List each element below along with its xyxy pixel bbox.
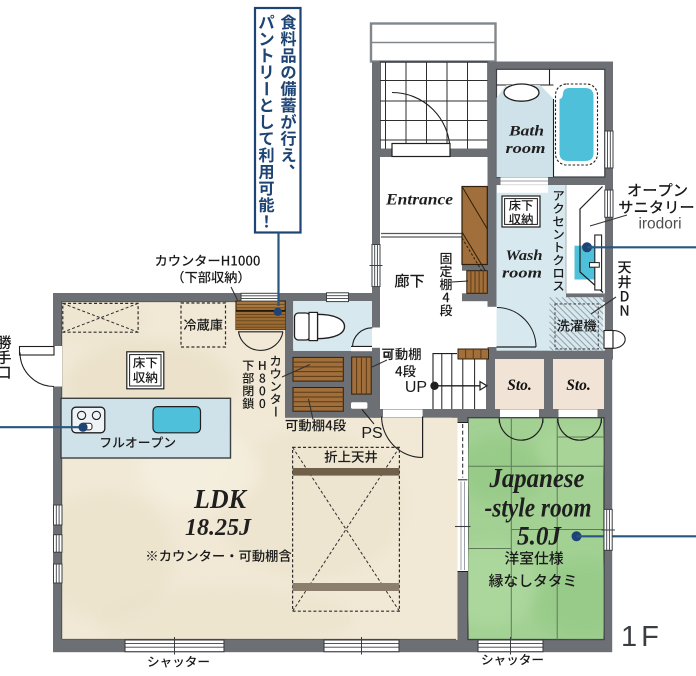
svg-text:room: room (502, 266, 542, 282)
svg-text:Sto.: Sto. (566, 377, 591, 394)
svg-text:Bath: Bath (508, 124, 544, 140)
svg-text:irodori: irodori (638, 216, 681, 233)
svg-text:Entrance: Entrance (385, 192, 453, 209)
svg-text:Wash: Wash (506, 248, 543, 264)
svg-text:Japanese: Japanese (489, 463, 585, 493)
svg-text:-style room: -style room (485, 493, 592, 523)
svg-text:room: room (506, 141, 546, 157)
svg-text:Sto.: Sto. (507, 377, 532, 394)
svg-text:5.0J: 5.0J (517, 522, 562, 551)
svg-text:1F: 1F (621, 621, 663, 653)
svg-text:UP: UP (405, 379, 427, 396)
svg-text:PS: PS (361, 425, 382, 442)
svg-text:LDK: LDK (193, 484, 248, 514)
svg-text:18.25J: 18.25J (185, 514, 252, 541)
